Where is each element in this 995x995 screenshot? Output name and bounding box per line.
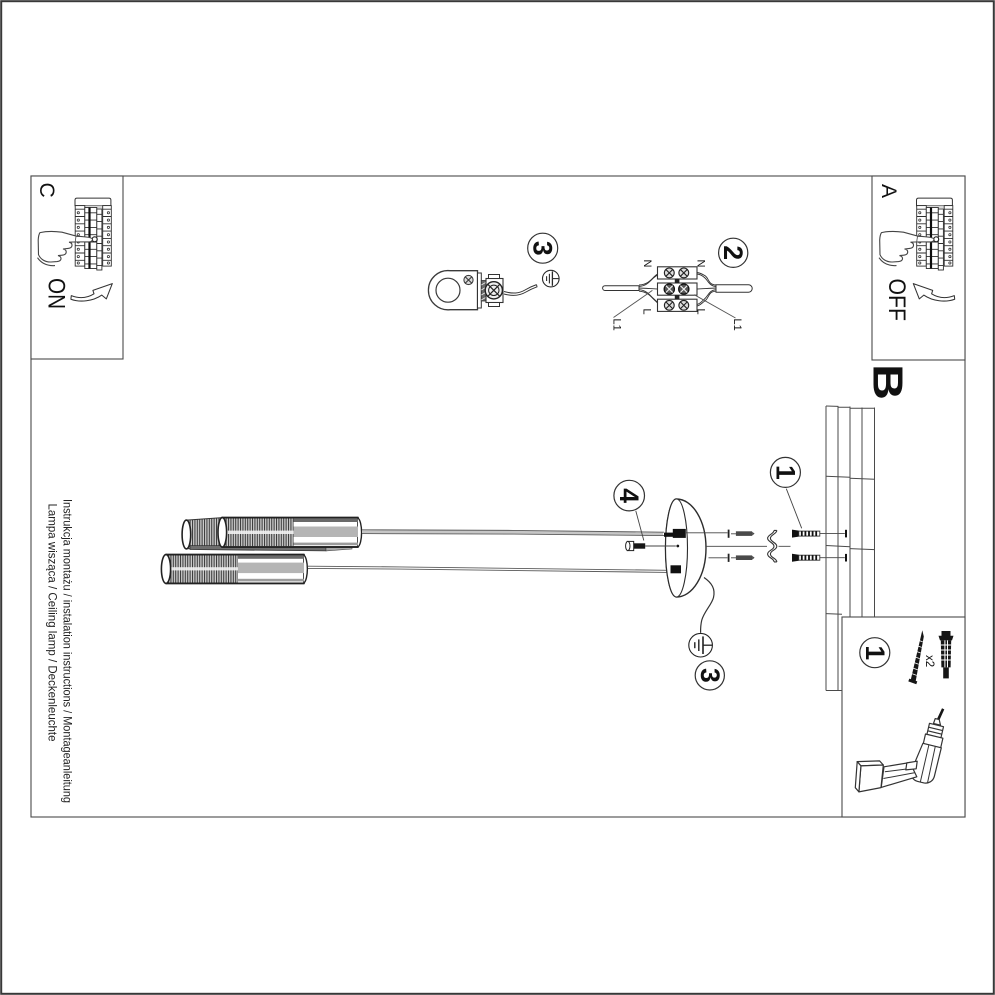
svg-text:1: 1 <box>770 465 800 480</box>
svg-text:A: A <box>877 184 900 198</box>
svg-text:L1: L1 <box>731 319 743 331</box>
svg-text:Instrukcja montażu / instalati: Instrukcja montażu / instalation instruc… <box>61 499 75 803</box>
svg-text:L: L <box>695 309 707 315</box>
svg-text:OFF: OFF <box>883 279 910 322</box>
svg-text:L1: L1 <box>611 319 623 331</box>
svg-text:4: 4 <box>614 488 644 503</box>
svg-text:Lampa wisząca / Ceiling lamp /: Lampa wisząca / Ceiling lamp / Deckenleu… <box>46 504 60 742</box>
svg-text:B: B <box>865 364 912 400</box>
svg-text:L: L <box>641 309 653 315</box>
svg-text:3: 3 <box>528 241 558 256</box>
svg-text:x2: x2 <box>923 655 935 667</box>
svg-text:C: C <box>35 183 58 198</box>
svg-text:3: 3 <box>695 668 725 683</box>
svg-text:1: 1 <box>860 645 890 660</box>
svg-text:N: N <box>695 260 707 268</box>
svg-text:ON: ON <box>43 278 70 309</box>
svg-text:2: 2 <box>718 245 748 260</box>
svg-text:N: N <box>641 260 653 268</box>
